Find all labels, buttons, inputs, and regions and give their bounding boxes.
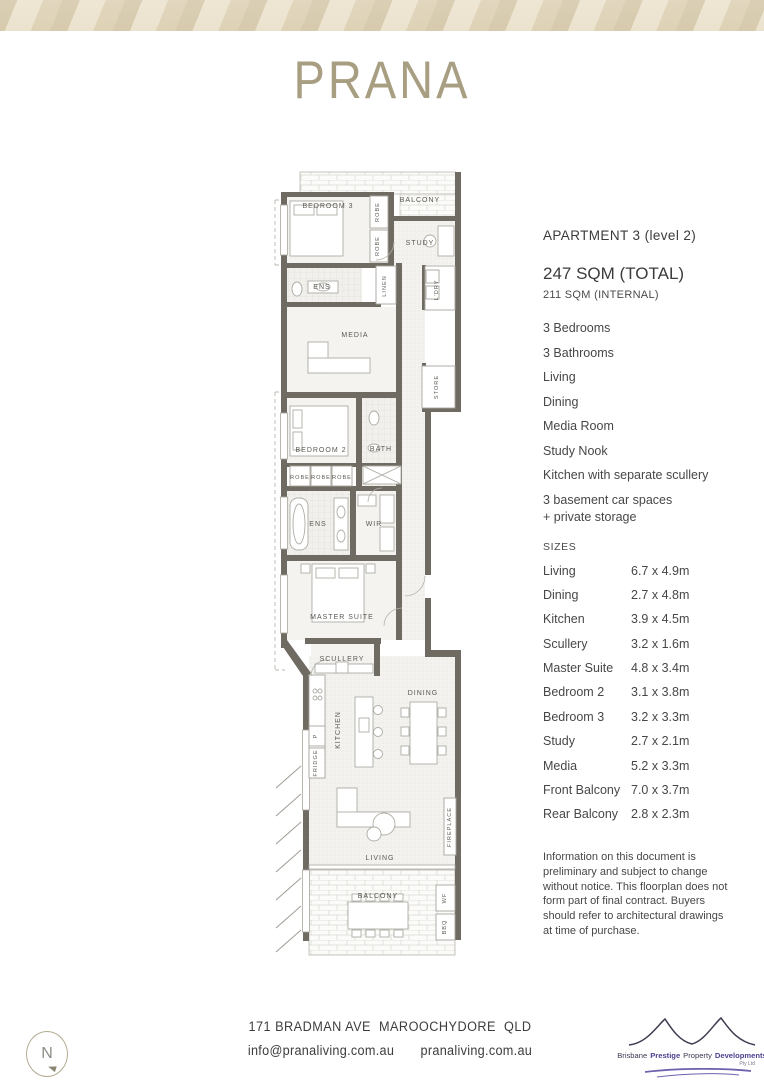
mountains-icon (623, 1014, 761, 1048)
developer-name: Brisbane Prestige Property Developments (623, 1051, 761, 1060)
room-label-media: MEDIA (341, 332, 368, 339)
room-label-dining: DINING (408, 690, 439, 697)
developer-logo: Brisbane Prestige Property Developments … (623, 1014, 761, 1080)
room-label-robe5: ROBE (332, 475, 352, 481)
size-row: Bedroom 23.1 x 3.8m (543, 685, 743, 709)
footer-website-link[interactable]: pranaliving.com.au (421, 1043, 533, 1058)
size-row: Living6.7 x 4.9m (543, 564, 743, 588)
room-label-master-ens: ENS (309, 521, 326, 528)
room-label-ldry: L'DRY (434, 280, 440, 301)
room-label-living: LIVING (366, 855, 395, 862)
size-row: Scullery3.2 x 1.6m (543, 637, 743, 661)
footer-email-link[interactable]: info@pranaliving.com.au (248, 1043, 394, 1058)
hatch-lines (276, 766, 301, 952)
room-label-kitchen: KITCHEN (335, 711, 342, 749)
apartment-title: APARTMENT 3 (level 2) (543, 228, 743, 243)
size-row: Bedroom 33.2 x 3.3m (543, 710, 743, 734)
feature-item: 3 basement car spaces (543, 494, 743, 507)
room-label-master: MASTER SUITE (310, 614, 374, 621)
size-row: Media5.2 x 3.3m (543, 759, 743, 783)
feature-item: Study Nook (543, 445, 743, 458)
sand-texture-banner (0, 0, 764, 31)
size-row: Front Balcony7.0 x 3.7m (543, 783, 743, 807)
feature-list: 3 Bedrooms 3 Bathrooms Living Dining Med… (543, 322, 743, 524)
size-row: Master Suite4.8 x 3.4m (543, 661, 743, 685)
sizes-heading: SIZES (543, 541, 743, 553)
room-label-wf: WF (442, 893, 448, 904)
scullery-bench-icon (315, 662, 373, 673)
feature-item: 3 Bedrooms (543, 322, 743, 335)
feature-item: Media Room (543, 420, 743, 433)
room-label-bedroom2: BEDROOM 2 (295, 447, 346, 454)
room-label-rear-balcony: BALCONY (400, 197, 440, 204)
kitchen-island-icon (355, 697, 383, 767)
room-label-front-balcony: BALCONY (358, 893, 398, 900)
dining-table-icon (401, 702, 446, 764)
feature-item: Living (543, 371, 743, 384)
room-label-fireplace: FIREPLACE (447, 807, 453, 847)
feature-item: + private storage (543, 511, 743, 524)
room-label-store: STORE (434, 375, 440, 399)
room-label-robe1: ROBE (375, 202, 381, 222)
room-label-pantry: P (313, 734, 319, 739)
feature-item: 3 Bathrooms (543, 347, 743, 360)
compass-letter: N (41, 1045, 53, 1063)
swoosh-icon (623, 1068, 761, 1080)
feature-item: Kitchen with separate scullery (543, 469, 743, 482)
brochure-page: PRANA (0, 0, 764, 1080)
room-label-wir: WIR (366, 521, 383, 528)
compass-arrow-icon (47, 1064, 56, 1072)
size-row: Kitchen3.9 x 4.5m (543, 612, 743, 636)
room-label-robe3: ROBE (290, 475, 310, 481)
feature-item: Dining (543, 396, 743, 409)
room-label-scullery: SCULLERY (320, 656, 365, 663)
apartment-info-column: APARTMENT 3 (level 2) 247 SQM (TOTAL) 21… (543, 228, 743, 832)
room-label-study: STUDY (406, 240, 435, 247)
sizes-table: Living6.7 x 4.9m Dining2.7 x 4.8m Kitche… (543, 564, 743, 832)
area-internal: 211 SQM (INTERNAL) (543, 289, 743, 301)
prana-logo: PRANA (0, 49, 764, 111)
room-label-fridge: FRIDGE (313, 749, 319, 776)
room-label-bedroom3: BEDROOM 3 (302, 203, 353, 210)
developer-pty-ltd: Pty Ltd (623, 1061, 755, 1067)
room-label-bbq: BBQ (442, 920, 448, 935)
size-row: Rear Balcony2.8 x 2.3m (543, 807, 743, 831)
compass-north-icon: N (26, 1031, 68, 1077)
size-row: Study2.7 x 2.1m (543, 734, 743, 758)
room-label-robe2: ROBE (375, 236, 381, 256)
size-row: Dining2.7 x 4.8m (543, 588, 743, 612)
disclaimer-text: Information on this document is prelimin… (543, 850, 729, 939)
room-label-linen: LINEN (382, 275, 388, 296)
room-label-robe4: ROBE (311, 475, 331, 481)
room-label-bath: BATH (370, 446, 392, 453)
floorplan-drawing: BEDROOM 3 ROBE ROBE BALCONY STUDY ENS LI… (270, 170, 474, 965)
area-total: 247 SQM (TOTAL) (543, 264, 743, 284)
room-label-ens3: ENS (313, 284, 330, 291)
